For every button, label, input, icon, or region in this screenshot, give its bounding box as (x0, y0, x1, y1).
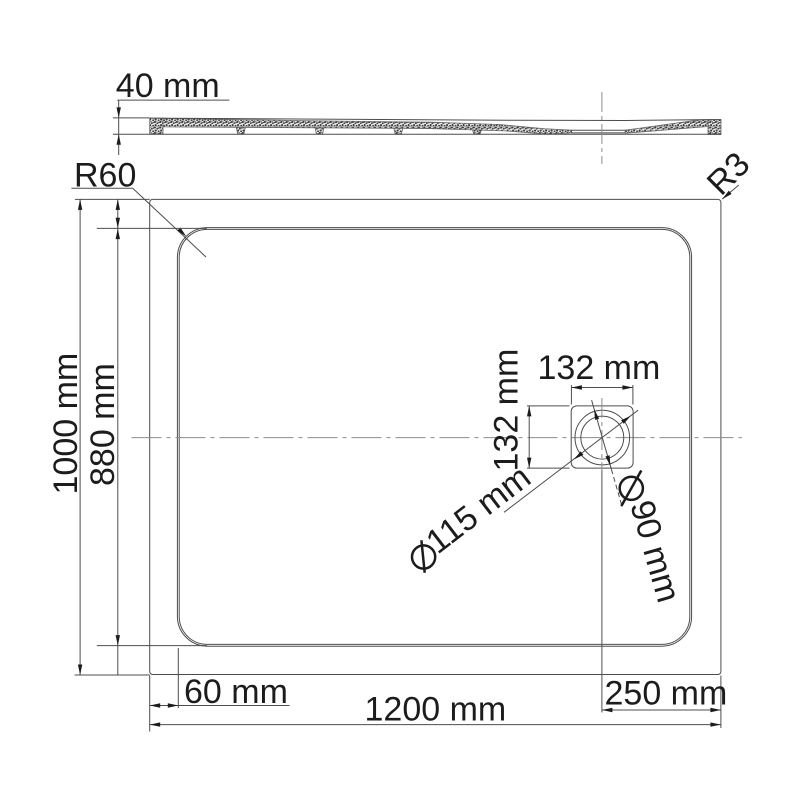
svg-text:1000 mm: 1000 mm (47, 353, 85, 495)
svg-text:250 mm: 250 mm (605, 675, 728, 713)
svg-text:132 mm: 132 mm (488, 349, 526, 472)
svg-text:880 mm: 880 mm (84, 363, 122, 486)
svg-text:90 mm: 90 mm (622, 496, 687, 606)
svg-text:115 mm: 115 mm (419, 458, 538, 561)
svg-text:40 mm: 40 mm (116, 67, 220, 105)
svg-text:60 mm: 60 mm (184, 673, 288, 711)
svg-text:1200 mm: 1200 mm (365, 690, 507, 728)
svg-text:132 mm: 132 mm (538, 349, 661, 387)
